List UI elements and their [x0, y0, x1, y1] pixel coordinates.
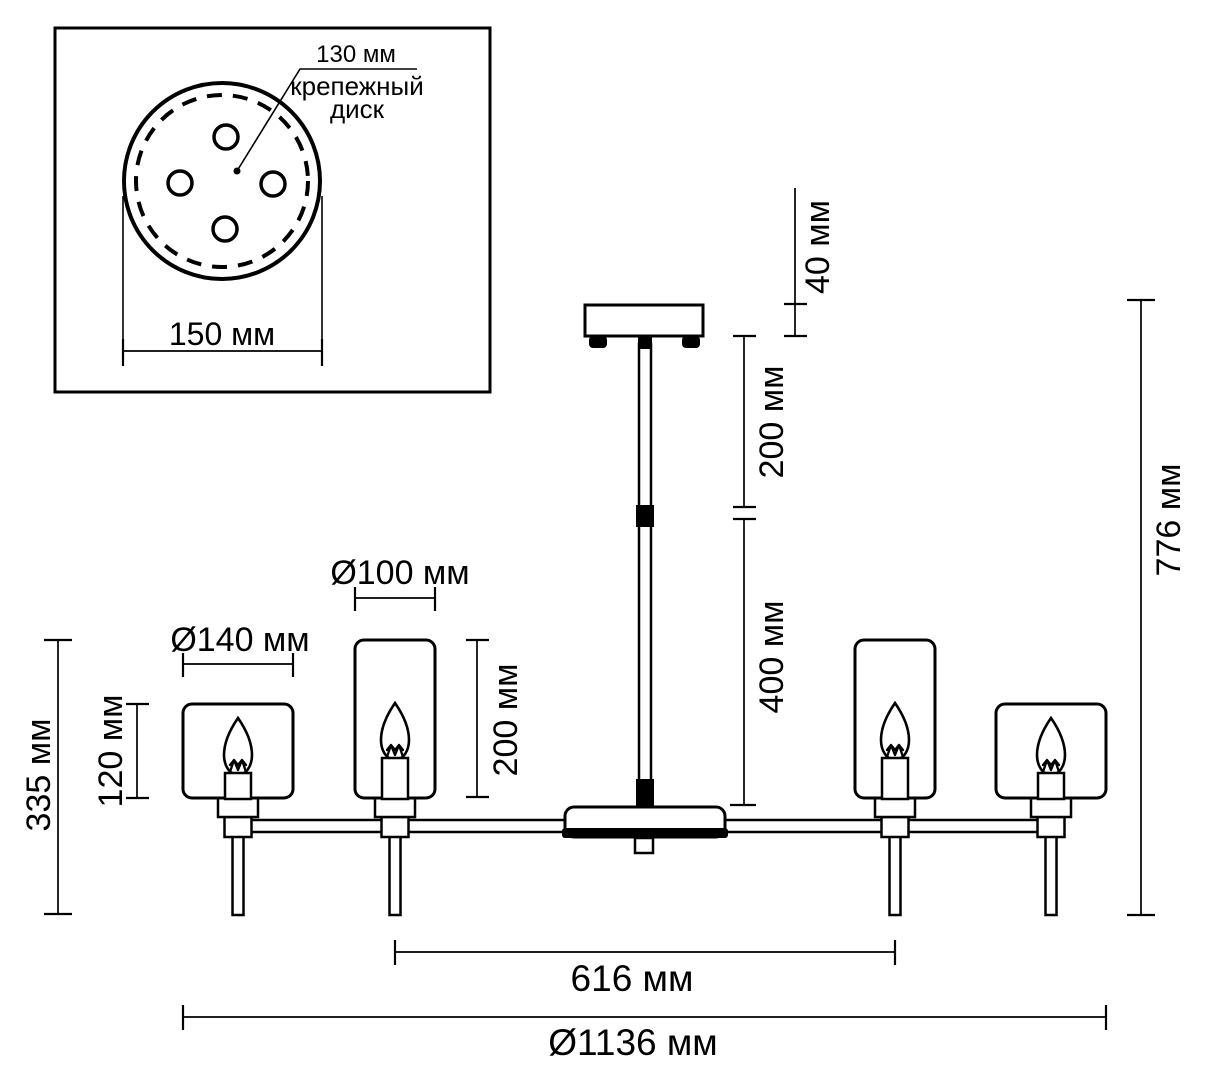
lamp-socket [218, 798, 258, 817]
lamp-1 [183, 704, 293, 915]
arm-joint [225, 817, 252, 837]
rod-hub-joint [636, 779, 654, 808]
dim-canopy-height: 40 мм [784, 188, 837, 336]
dim-large-shade-diameter: Ø140 мм [170, 621, 309, 677]
lamp-socket [375, 798, 415, 817]
screw-hole-left [168, 171, 192, 195]
large-shade-height-label: 120 мм [92, 695, 130, 808]
small-shade-diameter-label: Ø100 мм [330, 554, 469, 592]
candle-sleeve [882, 758, 908, 799]
lamp-2 [355, 640, 435, 915]
arm-to-tip-height-label: 335 мм [20, 719, 58, 832]
canopy-foot-left [589, 336, 607, 348]
dim-lower-rod: 400 мм [730, 519, 791, 805]
lamp-socket [875, 798, 915, 817]
drawing-svg: 130 мм крепежный диск 150 мм [0, 0, 1214, 1092]
overall-diameter-label: Ø1136 мм [548, 1022, 718, 1063]
mounting-plate-circle [124, 83, 320, 279]
mounting-disk-caption-line2: диск [330, 94, 385, 124]
arm-joint [882, 817, 909, 837]
chandelier-dimension-drawing: 130 мм крепежный диск 150 мм [0, 0, 1214, 1092]
large-shade-diameter-label: Ø140 мм [170, 621, 309, 659]
rod-mid-joint [636, 505, 654, 527]
plate-diameter-dimension-label: 150 мм [169, 316, 275, 352]
mounting-plate-detail-inset: 130 мм крепежный диск 150 мм [55, 28, 490, 392]
lamp-spike [233, 836, 244, 915]
rod-top-joint [638, 336, 652, 349]
dim-large-shade-height: 120 мм [92, 695, 149, 808]
small-shade-height-label: 200 мм [487, 664, 525, 777]
dim-upper-rod: 200 мм [733, 336, 791, 507]
lamp-4 [996, 704, 1106, 915]
ceiling-canopy [585, 305, 703, 336]
canopy-height-label: 40 мм [799, 200, 837, 294]
arm-joint [382, 817, 409, 837]
lamp-3 [855, 640, 935, 915]
dim-inner-lamps-span: 616 мм [395, 940, 895, 999]
lamp-spike [390, 836, 401, 915]
overall-height-label: 776 мм [1150, 464, 1188, 577]
hub-base-plate [562, 828, 728, 838]
lamp-spike [1046, 836, 1057, 915]
dim-small-shade-height: 200 мм [466, 640, 525, 797]
candle-sleeve [225, 773, 251, 799]
screw-hole-right [261, 172, 285, 196]
lamp-spike [890, 836, 901, 915]
screw-hole-top [214, 125, 238, 149]
candle-sleeve [382, 758, 408, 799]
canopy-foot-right [682, 336, 700, 348]
lower-rod-length-label: 400 мм [753, 601, 791, 714]
bolt-circle-dimension-label: 130 мм [316, 41, 396, 68]
upper-rod-length-label: 200 мм [753, 366, 791, 479]
hub-finial [635, 838, 653, 853]
dim-overall-diameter: Ø1136 мм [183, 1005, 1106, 1063]
candle-sleeve [1038, 773, 1064, 799]
inner-lamps-span-label: 616 мм [571, 958, 694, 999]
dim-small-shade-diameter: Ø100 мм [330, 554, 469, 611]
arm-joint [1038, 817, 1065, 837]
dim-overall-height: 776 мм [1127, 300, 1188, 915]
chandelier-front-view [183, 305, 1106, 915]
dim-arm-to-tip-height: 335 мм [20, 640, 72, 914]
lamp-socket [1031, 798, 1071, 817]
screw-hole-bottom [213, 217, 237, 241]
suspension-rod [639, 344, 651, 808]
